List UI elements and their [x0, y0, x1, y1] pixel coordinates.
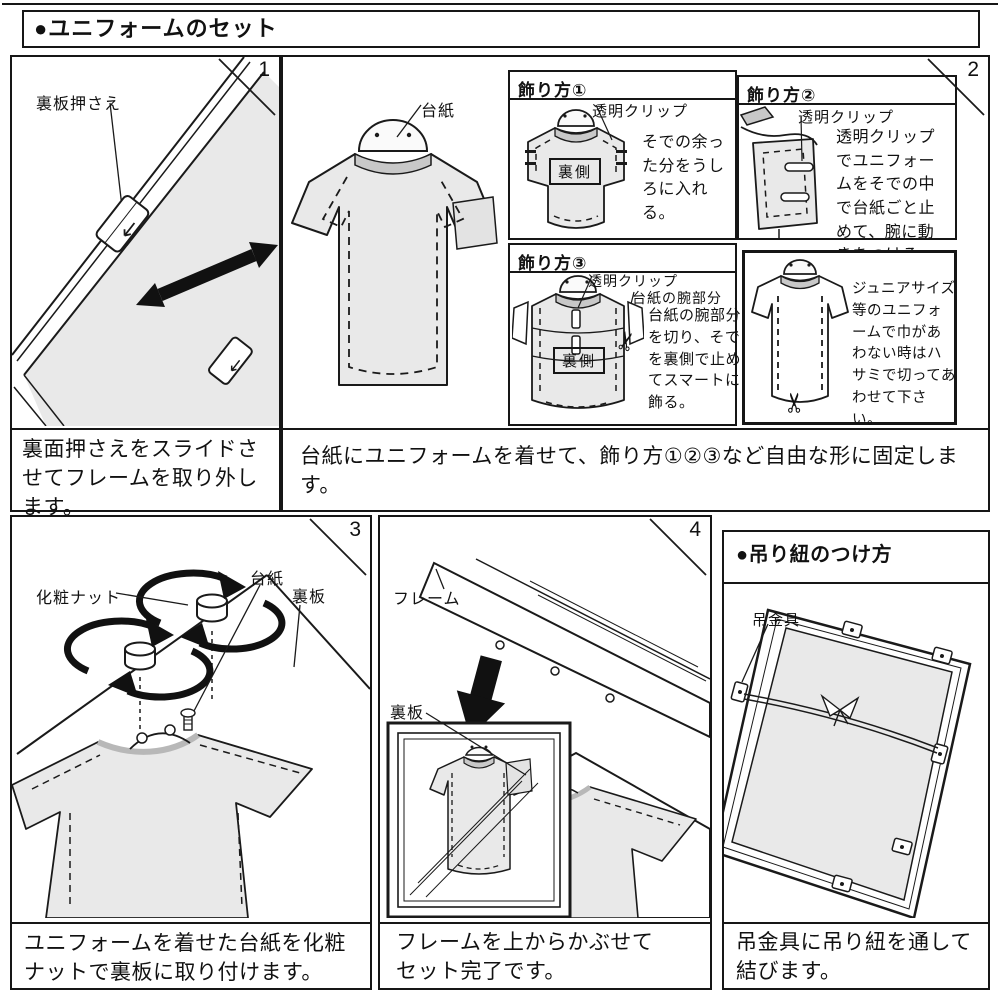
label-clear-clip-2: 透明クリップ [798, 106, 894, 127]
scissors-icon-junior: ✂ [782, 391, 809, 414]
label-mat-board-3: 台紙 [250, 565, 284, 589]
hanging-header: ●吊り紐のつけ方 [736, 542, 976, 570]
step-number-3: 3 [308, 517, 370, 579]
step-number-1-text: 1 [258, 58, 270, 82]
step-number-2: 2 [926, 57, 988, 119]
caption-divider-2 [283, 428, 988, 430]
caption-divider-1 [12, 428, 279, 430]
method-1-note: そでの余った分をうしろに入れる。 [642, 131, 740, 226]
hanging-caption-divider [724, 922, 988, 924]
caption-panel-4: フレームを上からかぶせてセット完了です。 [396, 929, 658, 987]
method-2-note: 透明クリップでユニフォームをそでの中で台紙ごと止めて、腕に動きをつける。 [836, 126, 936, 268]
screw-drawing [181, 709, 195, 730]
step-number-3-text: 3 [349, 518, 361, 542]
caption-panel-3: ユニフォームを着せた台紙を化粧ナットで裏板に取り付けます。 [24, 930, 346, 988]
label-back-board-4: 裏板 [390, 699, 424, 723]
caption-hanging: 吊金具に吊り紐を通して結びます。 [736, 929, 974, 987]
frame-back-hanging-drawing [724, 584, 988, 918]
page-top-rule [2, 3, 998, 5]
label-hanging-fitting: 吊金具 [752, 609, 800, 630]
junior-note: ジュニアサイズ等のユニフォームで巾があわない時はハサミで切ってあわせて下さい。 [852, 279, 956, 431]
label-frame: フレーム [393, 585, 461, 609]
method-2-header: 飾り方② [739, 77, 955, 105]
label-mat-board: 台紙 [421, 97, 455, 121]
instruction-sheet: ●ユニフォームのセット 裏板押さえ 1 裏面押さえをスライドさせてフレームを取り… [0, 0, 1000, 1000]
step-number-4-text: 4 [689, 518, 701, 542]
label-clear-clip-1: 透明クリップ [592, 100, 688, 121]
shirt-on-mat-board-drawing [285, 85, 500, 420]
label-decorative-nut: 化粧ナット [36, 584, 121, 608]
label-backboard-holder: 裏板押さえ [36, 90, 121, 114]
method-3-note: 台紙の腕部分を切り、そでを裏側で止めてスマートに飾る。 [648, 305, 744, 414]
caption-divider-4 [380, 922, 710, 924]
label-back-board-3: 裏板 [292, 583, 326, 607]
caption-panel-1: 裏面押さえをスライドさせてフレームを取り外します。 [22, 436, 278, 523]
method-3-header: 飾り方③ [510, 245, 735, 273]
step-number-1: 1 [217, 57, 279, 119]
step-number-2-text: 2 [967, 58, 979, 82]
caption-divider-3 [12, 922, 370, 924]
framed-shirt-preview [388, 723, 570, 917]
caption-panel-2: 台紙にユニフォームを着せて、飾り方①②③など自由な形に固定します。 [300, 443, 980, 501]
page-title: ●ユニフォームのセット [22, 10, 980, 48]
page-title-text: ●ユニフォームのセット [34, 16, 278, 41]
label-back-side-1: 裏側 [549, 158, 601, 185]
step-number-4: 4 [648, 517, 710, 579]
label-back-side-3: 裏側 [553, 347, 605, 374]
method-1-header: 飾り方① [510, 72, 735, 100]
